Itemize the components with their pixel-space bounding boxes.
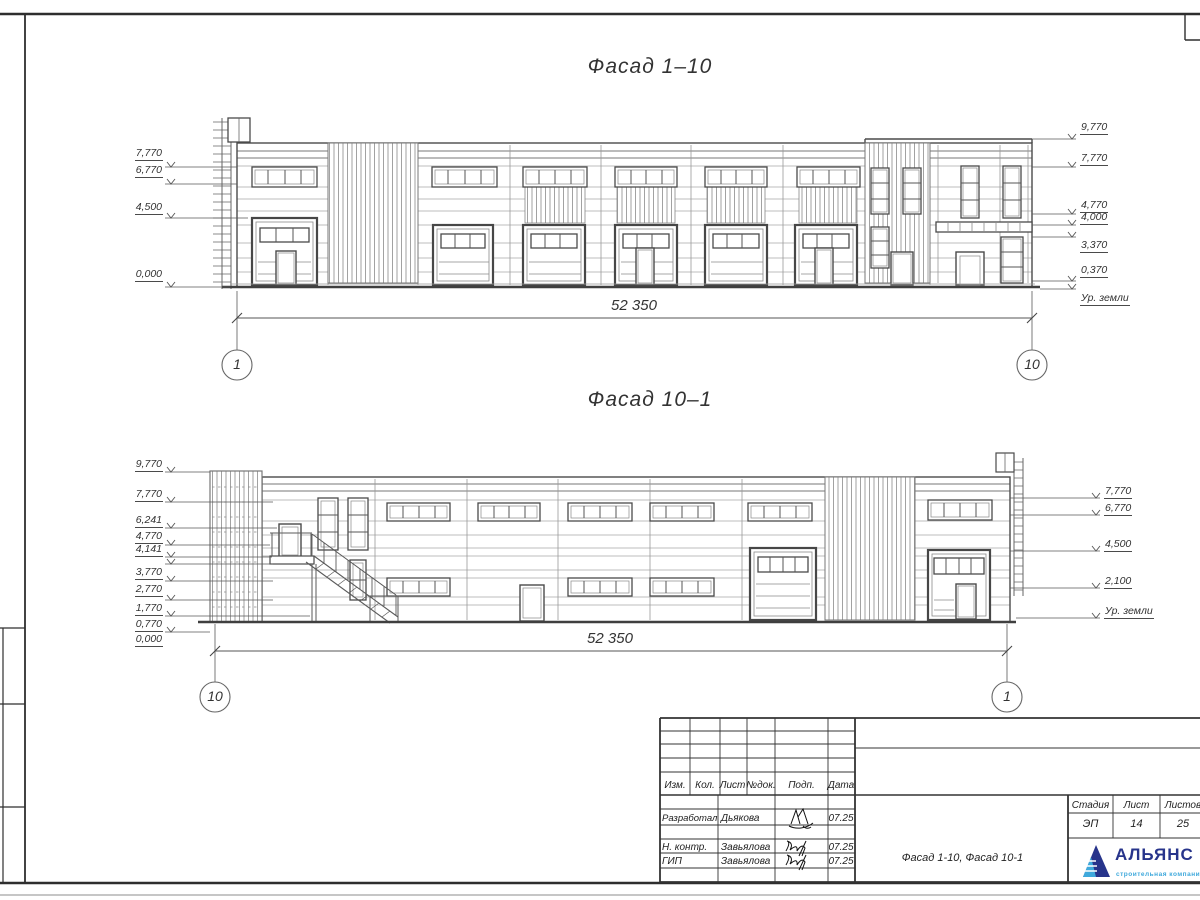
alliance-logo-icon — [1083, 845, 1110, 877]
elevation-mark: 7,770 — [135, 488, 163, 502]
facade-10-1-drawing — [165, 453, 1100, 712]
facade-10-1-title: Фасад 10–1 — [520, 393, 780, 406]
stamp-sheet-value: 14 — [1113, 818, 1160, 831]
ground-level-label: Ур. земли — [1080, 292, 1130, 306]
stamp-name: Дьякова — [721, 812, 775, 825]
axis-bubble-label: 10 — [200, 690, 230, 703]
stamp-role: Разработал — [662, 812, 718, 825]
company-logo-name: АЛЬЯНС — [1115, 848, 1194, 861]
overall-dimension: 52 350 — [510, 632, 710, 645]
elevation-mark: 4,000 — [1080, 211, 1108, 225]
facade-1-10-title: Фасад 1–10 — [520, 60, 780, 73]
stamp-name: Завьялова — [721, 841, 775, 854]
stamp-role: ГИП — [662, 855, 718, 868]
stamp-stage-value: ЭП — [1068, 818, 1113, 831]
elevation-mark: 1,770 — [135, 602, 163, 616]
elevation-mark: 6,770 — [135, 164, 163, 178]
elevation-mark: 0,370 — [1080, 264, 1108, 278]
stamp-sheets-label: Листов — [1160, 799, 1200, 812]
elevation-mark: 4,500 — [135, 201, 163, 215]
overall-dimension: 52 350 — [534, 299, 734, 312]
stamp-header-list: Лист — [718, 779, 747, 792]
elevation-mark: 7,770 — [1104, 485, 1132, 499]
stamp-doc-title: Фасад 1-10, Фасад 10-1 — [860, 852, 1065, 865]
elevation-mark: 9,770 — [135, 458, 163, 472]
company-logo-tagline: строительная компания — [1116, 868, 1200, 881]
stamp-name: Завьялова — [721, 855, 775, 868]
elevation-mark: 4,770 — [135, 530, 163, 544]
stamp-date: 07.25 — [827, 812, 855, 825]
elevation-mark: 9,770 — [1080, 121, 1108, 135]
stamp-header-data: Дата — [827, 779, 855, 792]
elevation-mark: 6,770 — [1104, 502, 1132, 516]
elevation-mark: 2,770 — [135, 583, 163, 597]
elevation-mark: 7,770 — [135, 147, 163, 161]
stamp-date: 07.25 — [827, 841, 855, 854]
elevation-mark: 4,500 — [1104, 538, 1132, 552]
stamp-stage-label: Стадия — [1068, 799, 1113, 812]
ground-level-label: Ур. земли — [1104, 605, 1154, 619]
stamp-sheet-label: Лист — [1113, 799, 1160, 812]
elevation-mark: 6,241 — [135, 514, 163, 528]
facade-1-10-drawing — [165, 118, 1076, 380]
elevation-mark: 2,100 — [1104, 575, 1132, 589]
elevation-mark: 3,370 — [1080, 239, 1108, 253]
sheet-frame — [0, 14, 1200, 895]
elevation-mark: 3,770 — [135, 566, 163, 580]
stamp-date: 07.25 — [827, 855, 855, 868]
stamp-sheets-value: 25 — [1160, 818, 1200, 831]
stamp-header-podp: Подп. — [775, 779, 828, 792]
elevation-mark: 0,000 — [135, 268, 163, 282]
stamp-header-kol: Кол. — [690, 779, 720, 792]
stamp-header-izm: Изм. — [660, 779, 690, 792]
elevation-mark: 4,141 — [135, 543, 163, 557]
elevation-mark: 0,000 — [135, 633, 163, 647]
elevation-mark: 0,770 — [135, 618, 163, 632]
axis-bubble-label: 10 — [1017, 358, 1047, 371]
axis-bubble-label: 1 — [222, 358, 252, 371]
stamp-header-doc: №док. — [746, 779, 776, 792]
sheet-linework — [0, 0, 1200, 900]
stamp-role: Н. контр. — [662, 841, 718, 854]
signatures — [786, 809, 813, 870]
drawing-sheet: { "facades": [ { "title": "Фасад 1–10", … — [0, 0, 1200, 900]
elevation-mark: 7,770 — [1080, 152, 1108, 166]
axis-bubble-label: 1 — [992, 690, 1022, 703]
